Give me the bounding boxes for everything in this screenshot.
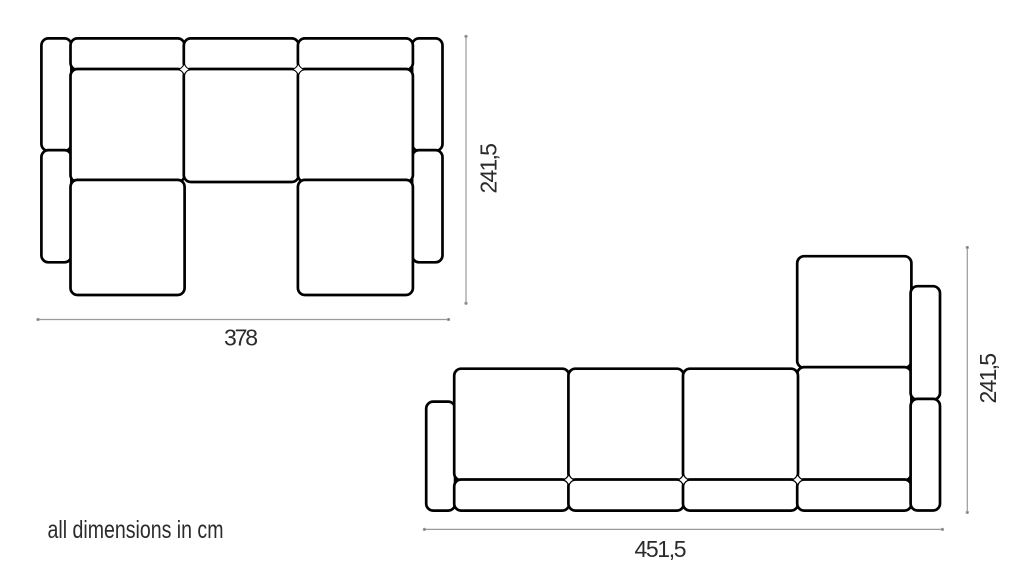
svg-text:241,5: 241,5 [975,353,1001,404]
svg-text:all dimensions in cm: all dimensions in cm [48,516,224,544]
svg-text:451,5: 451,5 [635,536,687,562]
svg-text:241,5: 241,5 [476,143,502,193]
svg-text:378: 378 [224,325,258,351]
